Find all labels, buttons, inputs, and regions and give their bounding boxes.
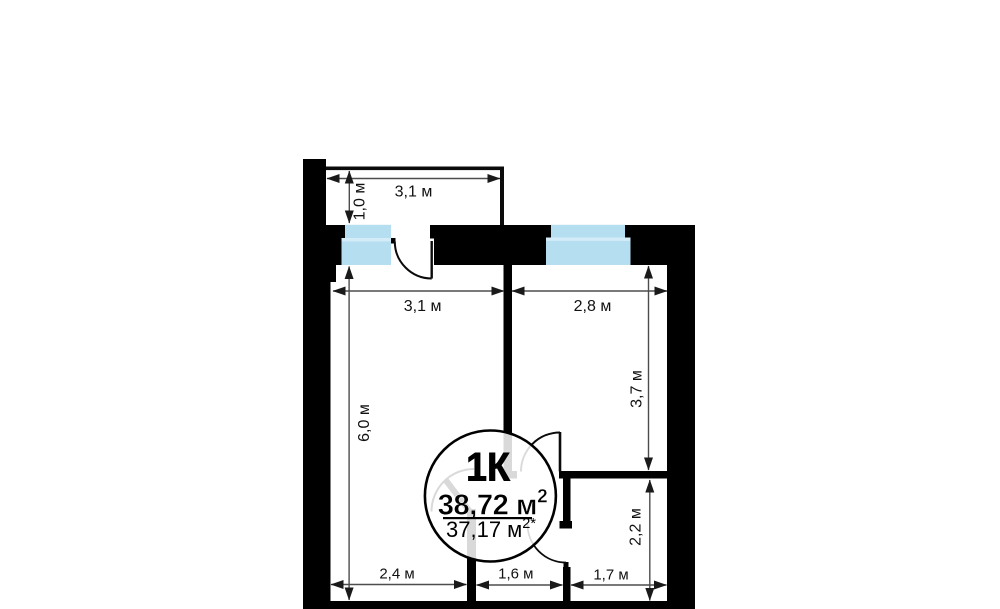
- svg-text:1,6 м: 1,6 м: [498, 565, 533, 582]
- svg-text:1,7 м: 1,7 м: [593, 566, 628, 583]
- svg-text:3,1 м: 3,1 м: [404, 298, 442, 315]
- svg-text:3,7 м: 3,7 м: [629, 370, 646, 408]
- svg-text:2,4 м: 2,4 м: [379, 565, 414, 582]
- svg-text:2,8 м: 2,8 м: [574, 298, 612, 315]
- svg-text:1К: 1К: [466, 445, 510, 489]
- svg-text:2,2 м: 2,2 м: [627, 508, 644, 546]
- svg-text:6,0 м: 6,0 м: [356, 404, 373, 442]
- svg-text:3,1 м: 3,1 м: [395, 183, 433, 200]
- svg-text:1,0 м: 1,0 м: [352, 183, 369, 221]
